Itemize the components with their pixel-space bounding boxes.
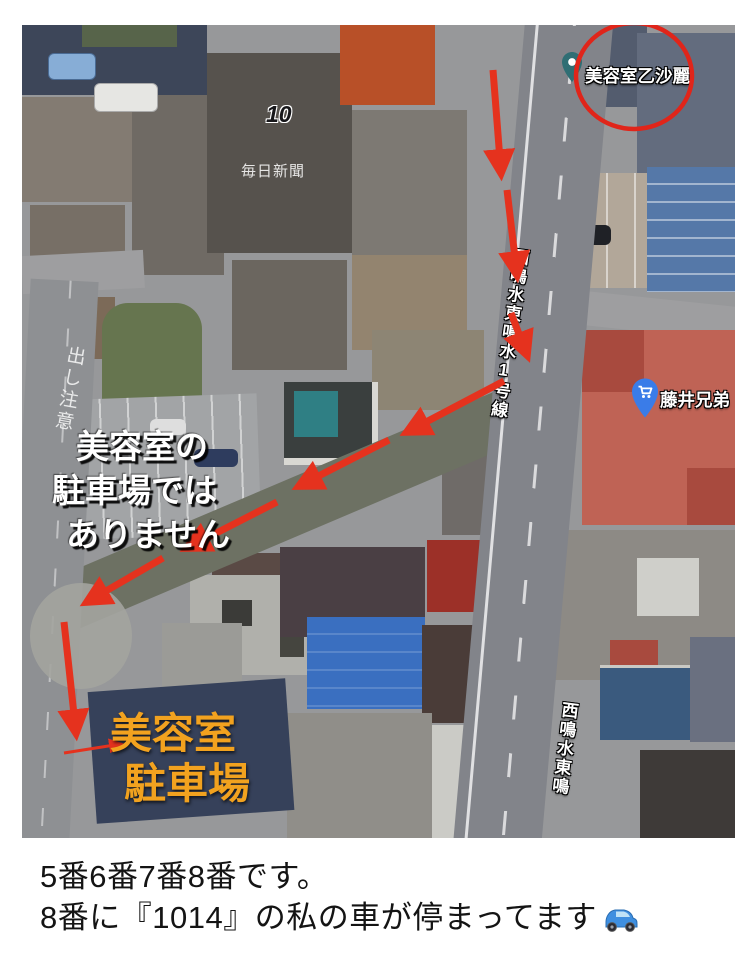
map-feature xyxy=(280,637,304,657)
map-feature xyxy=(48,53,96,80)
warning-line: ありません xyxy=(66,513,230,557)
car-emoji-icon xyxy=(601,902,639,934)
warning-line: 美容室の xyxy=(76,425,230,469)
map-feature xyxy=(647,167,735,292)
route-number-marker: 10 xyxy=(266,101,292,128)
map-feature xyxy=(352,110,467,255)
map-feature xyxy=(294,391,338,437)
warning-line: 駐車場では xyxy=(52,469,230,513)
salon-parking-line: 美容室 xyxy=(110,709,250,759)
map-feature xyxy=(207,53,352,253)
map-feature xyxy=(640,750,735,838)
map-feature xyxy=(82,25,177,47)
caption-line-1: 5番6番7番8番です。 xyxy=(40,856,639,897)
map-feature xyxy=(637,33,735,175)
map-feature xyxy=(287,713,432,838)
map-feature xyxy=(340,25,435,105)
satellite-map[interactable]: 10 毎日新聞 西鳴水東鳴水1号線 西鳴水東鳴 出し注意 美容室乙沙麗 藤井兄弟 xyxy=(22,25,735,838)
store-pin-label[interactable]: 藤井兄弟 xyxy=(660,387,730,412)
caption-line-2-text: 8番に『1014』の私の車が停まってます xyxy=(40,897,597,938)
map-feature xyxy=(687,468,735,525)
store-map-pin-icon[interactable] xyxy=(632,377,658,419)
not-parking-warning: 美容室の 駐車場では ありません xyxy=(52,425,230,557)
map-feature xyxy=(637,558,699,616)
map-feature xyxy=(30,583,132,689)
page: { "map": { "pins": [ { "id": "salon", "l… xyxy=(0,0,750,965)
caption-line-2: 8番に『1014』の私の車が停まってます xyxy=(40,897,639,938)
building-label: 毎日新聞 xyxy=(241,160,305,181)
caption: 5番6番7番8番です。 8番に『1014』の私の車が停まってます xyxy=(40,856,639,938)
map-feature xyxy=(94,83,158,112)
salon-parking-label: 美容室 駐車場 xyxy=(110,709,250,809)
map-feature xyxy=(22,97,132,202)
salon-pin-label[interactable]: 美容室乙沙麗 xyxy=(585,63,690,88)
map-feature xyxy=(610,640,658,666)
map-feature xyxy=(690,637,735,742)
map-feature xyxy=(232,260,347,370)
salon-parking-line: 駐車場 xyxy=(124,759,250,809)
map-feature xyxy=(372,330,484,410)
salon-map-pin-icon[interactable] xyxy=(562,51,582,83)
map-feature xyxy=(307,617,425,709)
